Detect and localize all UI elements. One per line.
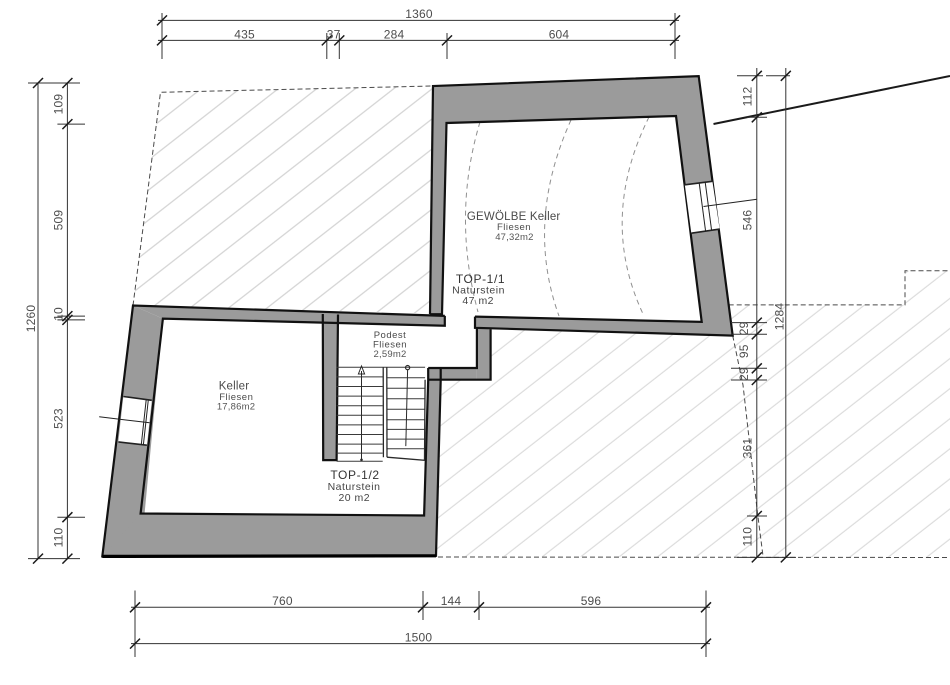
svg-text:1284: 1284: [773, 303, 787, 331]
svg-text:1260: 1260: [24, 305, 38, 333]
svg-text:760: 760: [272, 594, 293, 608]
svg-text:435: 435: [234, 27, 255, 41]
svg-text:109: 109: [52, 94, 66, 115]
svg-text:509: 509: [52, 210, 66, 231]
svg-text:523: 523: [52, 408, 66, 429]
svg-text:1500: 1500: [405, 630, 433, 644]
svg-text:47 m2: 47 m2: [462, 295, 494, 307]
svg-text:144: 144: [441, 594, 462, 608]
svg-text:110: 110: [52, 528, 66, 548]
svg-text:596: 596: [581, 594, 602, 608]
svg-text:110: 110: [741, 527, 755, 547]
svg-text:284: 284: [384, 27, 405, 41]
svg-text:TOP-1/2: TOP-1/2: [330, 468, 379, 482]
svg-text:546: 546: [741, 210, 755, 231]
svg-text:1360: 1360: [405, 7, 433, 21]
svg-text:361: 361: [741, 438, 755, 459]
svg-text:95: 95: [737, 344, 751, 358]
svg-text:112: 112: [741, 87, 755, 107]
svg-text:2,59m2: 2,59m2: [374, 349, 407, 360]
svg-text:Keller: Keller: [219, 381, 250, 393]
svg-text:29: 29: [737, 321, 751, 335]
svg-text:17,86m2: 17,86m2: [217, 402, 255, 413]
svg-text:604: 604: [549, 27, 570, 41]
svg-text:37: 37: [327, 27, 341, 41]
svg-text:47,32m2: 47,32m2: [495, 232, 533, 243]
svg-text:29: 29: [737, 367, 751, 381]
svg-text:10: 10: [52, 307, 66, 321]
svg-text:20 m2: 20 m2: [338, 492, 370, 504]
